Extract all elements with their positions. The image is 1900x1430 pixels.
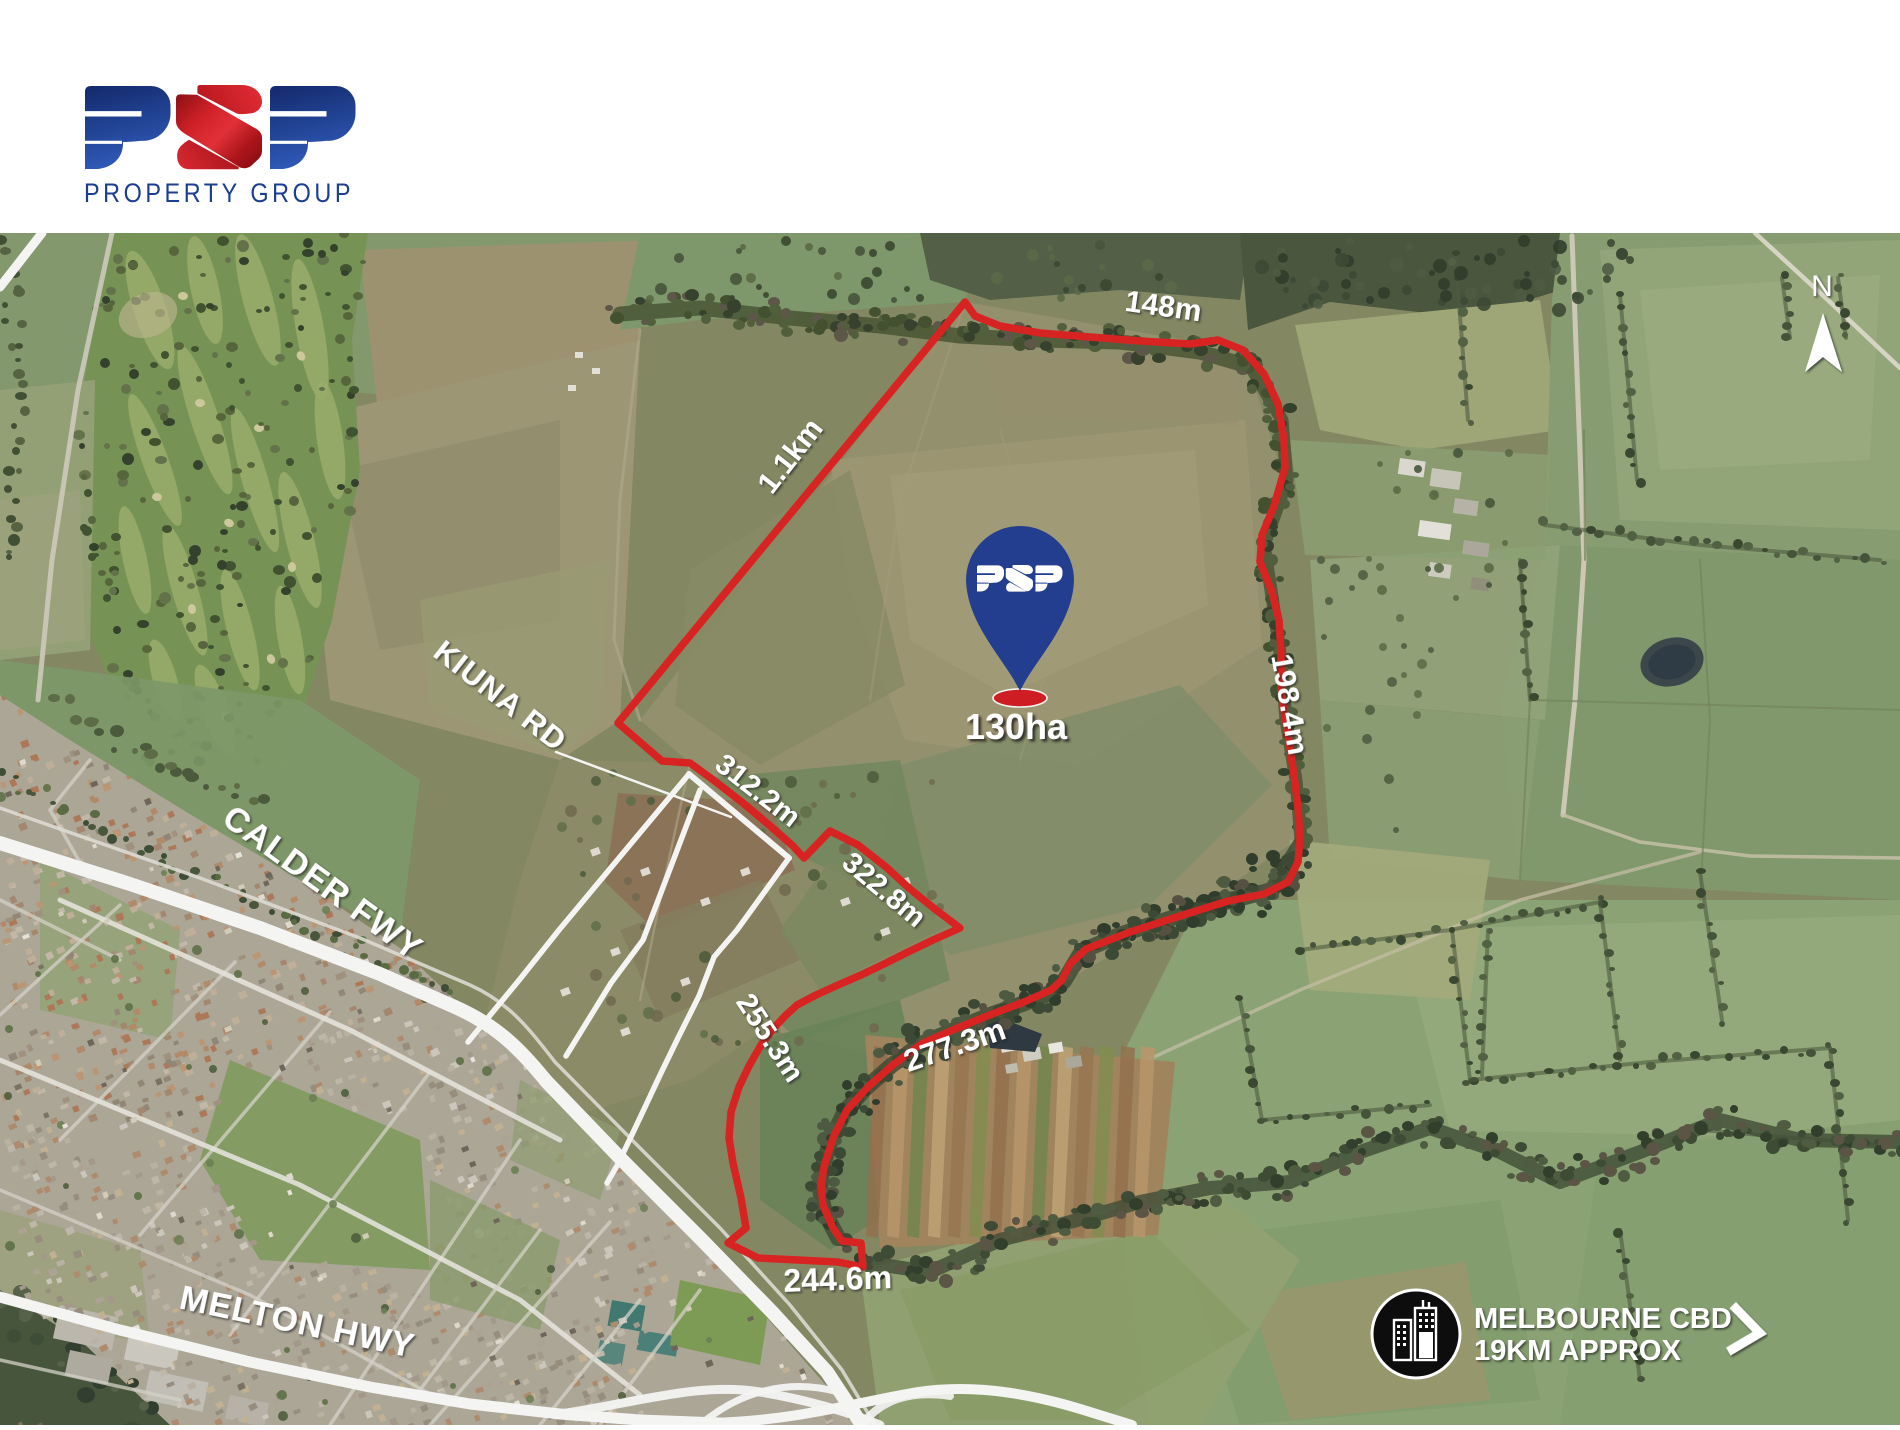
svg-text:130ha: 130ha bbox=[965, 706, 1068, 747]
svg-text:MELBOURNE CBD: MELBOURNE CBD bbox=[1474, 1303, 1732, 1335]
svg-text:PROPERTY GROUP: PROPERTY GROUP bbox=[84, 178, 354, 208]
svg-text:19KM APPROX: 19KM APPROX bbox=[1474, 1335, 1681, 1367]
svg-text:244.6m: 244.6m bbox=[783, 1259, 893, 1299]
svg-text:N: N bbox=[1811, 270, 1833, 303]
